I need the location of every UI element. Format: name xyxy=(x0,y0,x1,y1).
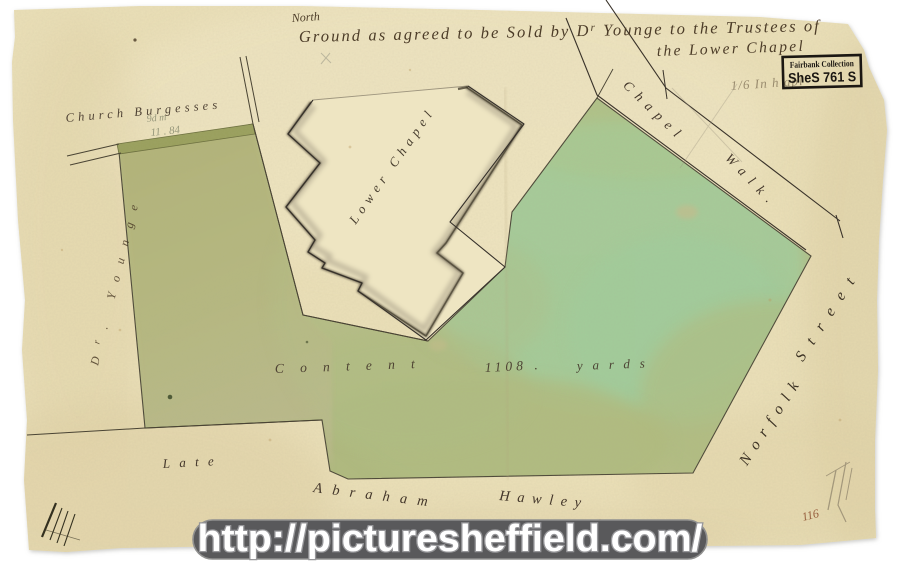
svg-text:http://picturesheffield.com/: http://picturesheffield.com/ xyxy=(198,518,703,560)
svg-text:SheS 761 S: SheS 761 S xyxy=(788,68,856,86)
svg-text:9d m: 9d m xyxy=(146,112,167,125)
svg-text:North: North xyxy=(290,9,320,25)
